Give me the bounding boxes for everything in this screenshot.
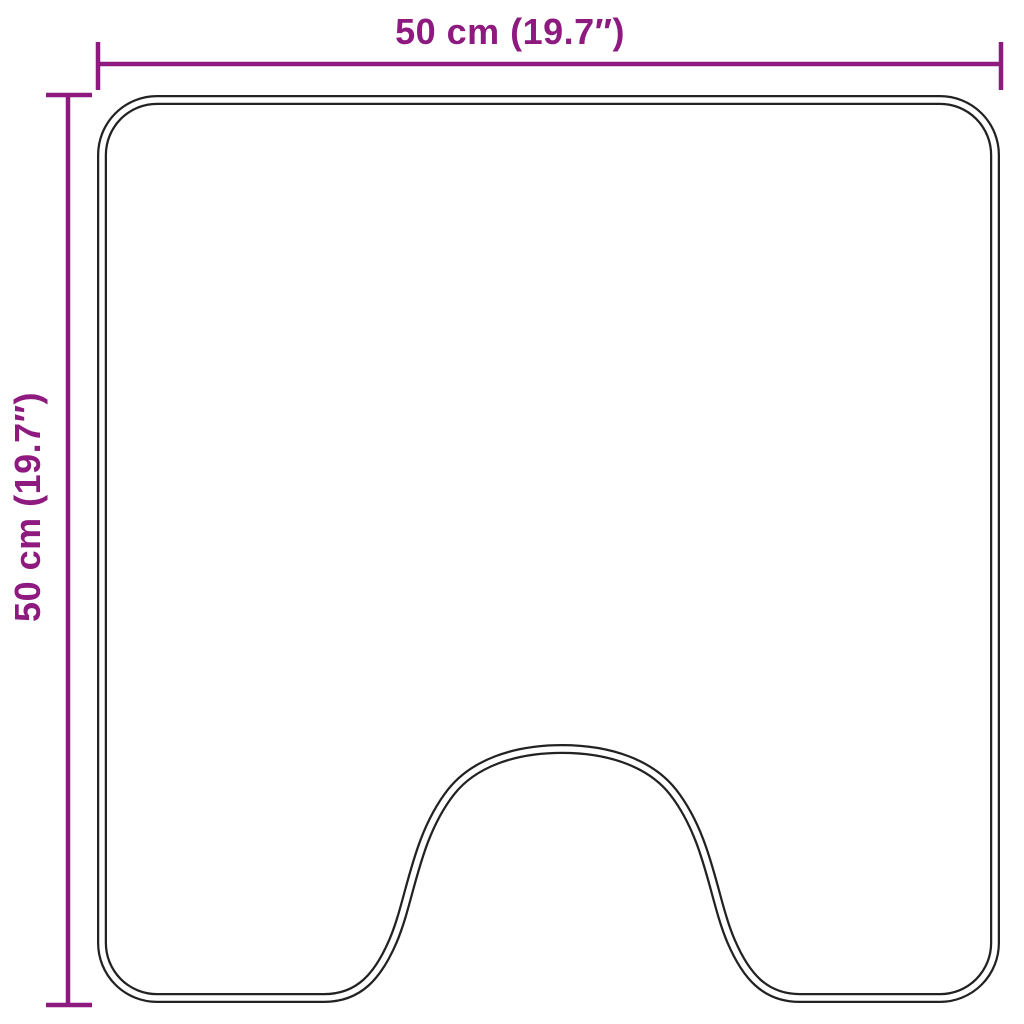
height-dimension-label: 50 cm (19.7″) [7,392,48,622]
dimension-diagram-canvas: 50 cm (19.7″) 50 cm (19.7″) [0,0,1024,1024]
height-dimension-line [46,95,92,1005]
mat-outline-outer-stroke [102,100,995,998]
mat-outline [102,100,995,998]
width-dimension-label: 50 cm (19.7″) [395,11,625,52]
product-dimension-diagram: 50 cm (19.7″) 50 cm (19.7″) [0,0,1024,1024]
